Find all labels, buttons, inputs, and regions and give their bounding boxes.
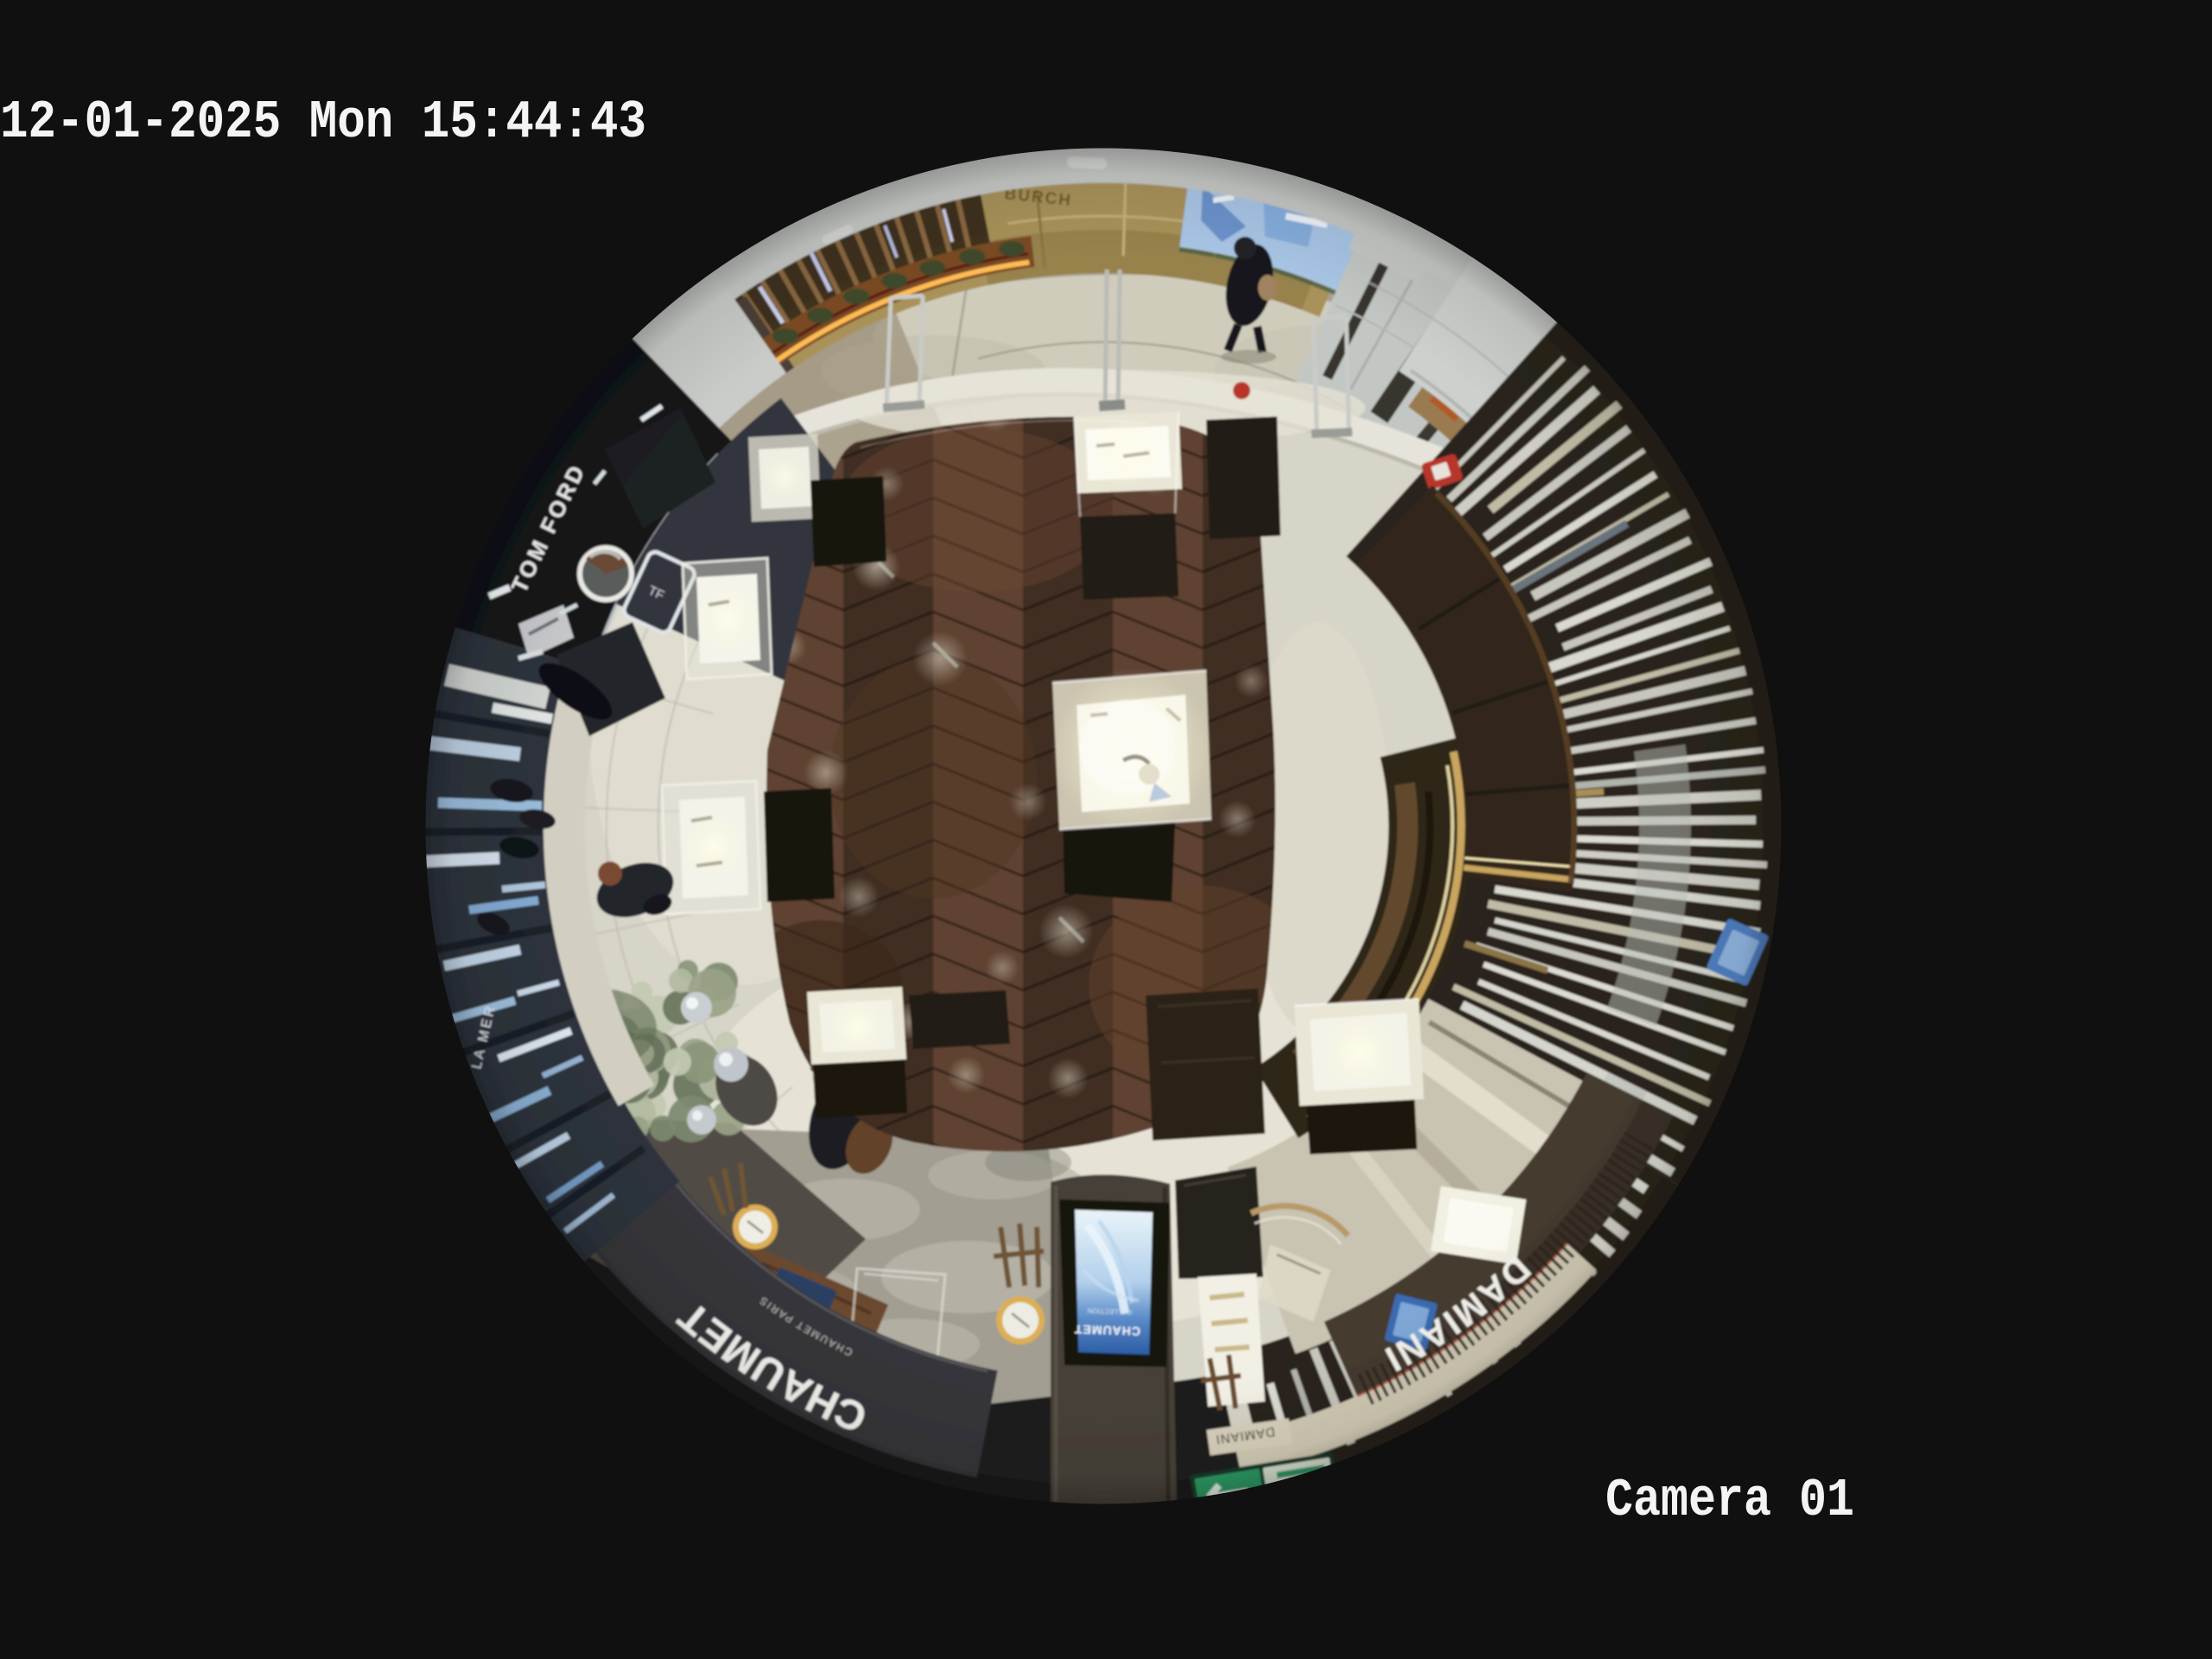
svg-text:12-01-2025 Mon 15:44:43: 12-01-2025 Mon 15:44:43 xyxy=(0,92,646,153)
svg-text:Camera 01: Camera 01 xyxy=(1605,1470,1854,1531)
